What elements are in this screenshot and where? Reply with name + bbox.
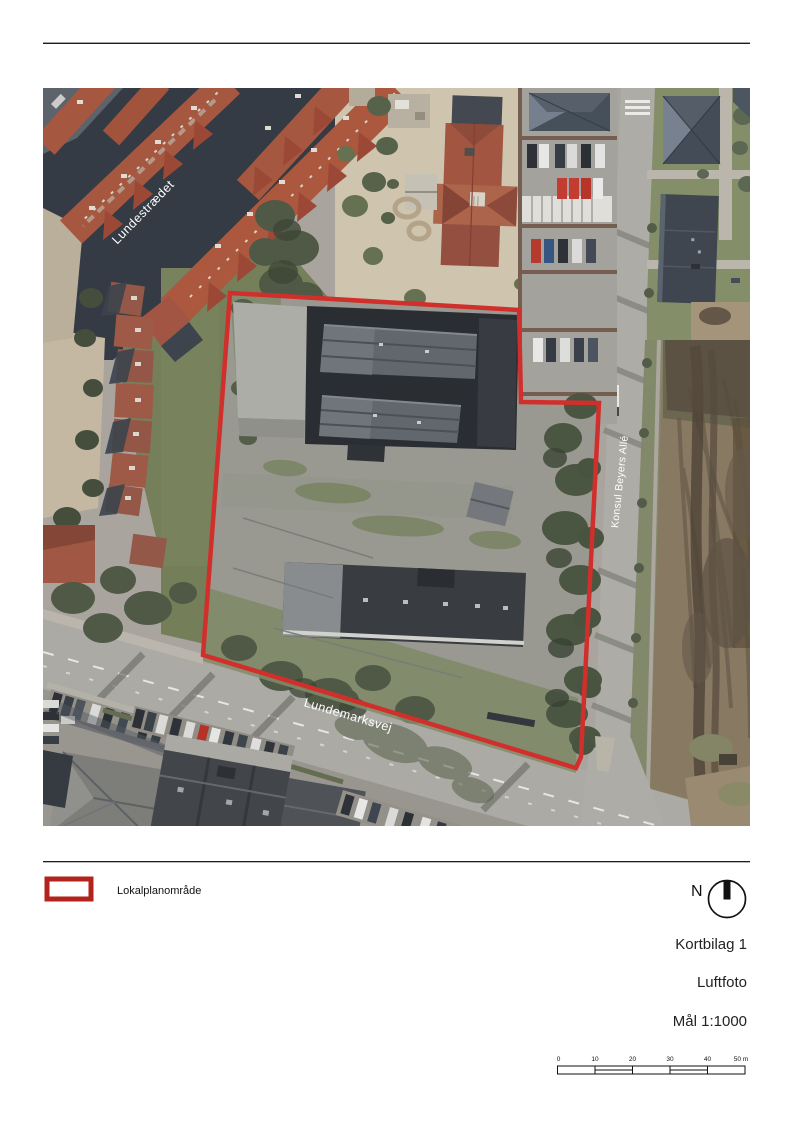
svg-text:N: N: [691, 883, 703, 900]
svg-text:0: 0: [557, 1056, 561, 1063]
svg-text:Lokalplanområde: Lokalplanområde: [117, 885, 201, 897]
svg-text:50 m: 50 m: [734, 1056, 748, 1063]
svg-text:10: 10: [591, 1056, 599, 1063]
svg-text:30: 30: [666, 1056, 674, 1063]
svg-text:40: 40: [704, 1056, 712, 1063]
svg-text:Luftfoto: Luftfoto: [697, 974, 747, 991]
svg-text:20: 20: [629, 1056, 637, 1063]
svg-text:Kortbilag 1: Kortbilag 1: [675, 936, 747, 953]
svg-text:Mål 1:1000: Mål 1:1000: [673, 1013, 747, 1030]
